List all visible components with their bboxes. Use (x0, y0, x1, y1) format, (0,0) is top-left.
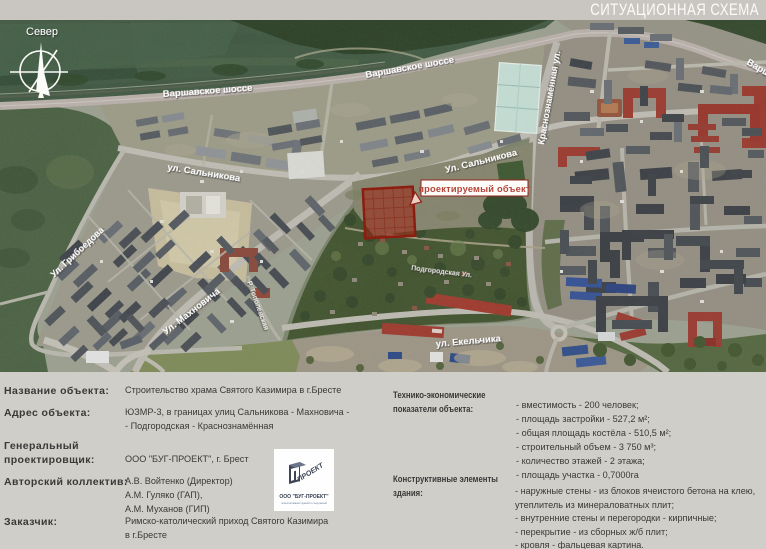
svg-text:ООО "БУГ-ПРОЕКТ": ООО "БУГ-ПРОЕКТ" (279, 494, 329, 500)
svg-text:Север: Север (26, 26, 58, 38)
svg-text:проектируемый объект: проектируемый объект (418, 184, 531, 194)
svg-text:проектирование зданий и сооруж: проектирование зданий и сооружений (281, 501, 328, 505)
